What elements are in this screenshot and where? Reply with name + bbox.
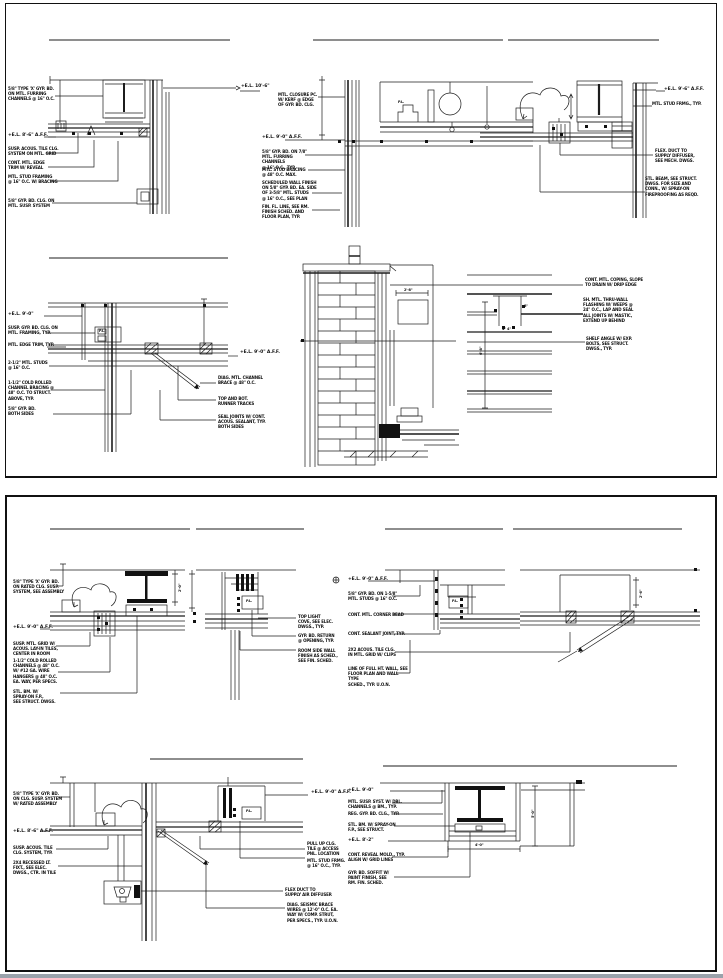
d11-note-5: GYP. BD. SOFFIT W/ PAINT FINISH, SEE RM.… — [348, 870, 396, 886]
d5-dim-1: 2'-8" — [404, 288, 424, 293]
d3-note-2: FLEX. DUCT TO SUPPLY DIFFUSER, SEE MECH.… — [655, 148, 701, 164]
d4-el-right: +E.L. 9'-0" A.F.F. — [240, 350, 280, 356]
d5-dim-3: 6'-8" — [479, 339, 484, 355]
d4-el: +E.L. 9'-0" — [8, 312, 44, 318]
d11-el-2: +E.L. 8'-2" — [348, 838, 384, 844]
d6-el: +E.L. 9'-0" A.F.F. — [13, 625, 57, 631]
d3-note-1: MTL. STUD FRMG., TYP. — [652, 101, 708, 106]
d10-note-2: SUSP. ACOUS. TILE CLG. SYSTEM, TYP. — [13, 845, 59, 855]
d6-note-3: 1-1/2" COLD ROLLED CHANNELS @ 48" O.C. W… — [13, 658, 65, 684]
cad-detail-sheet: 5/8" TYPE 'X' GYP. BD. ON MTL. FURRING C… — [0, 0, 723, 978]
d1-el-right: +E.L. 10'-6" — [241, 84, 281, 90]
d5-dim-2: 8" — [524, 304, 536, 309]
d11-dim-1: 4'-0" — [475, 843, 493, 848]
d11-el-1: +E.L. 9'-0" — [348, 788, 384, 794]
d7-pl-label: P.L. — [246, 599, 258, 604]
d2-note-2: MTL. STUD BRACING @ 48" O.C. MAX. — [262, 167, 312, 177]
d2-note-4: FIN. FL. LINE, SEE RM. FINISH SCHED. AND… — [262, 204, 314, 220]
d11-note-1: MTL. SUSP. SYST. W/ DBL. CHANNELS @ BM.,… — [348, 799, 406, 809]
d10-note-r2: MTL. STUD FRMG. @ 16" O.C., TYP. — [307, 858, 347, 868]
d11-note-3: STL. BM. W/ SPRAY-ON F.P., SEE STRUCT. — [348, 822, 402, 832]
d8-note-4: 2X2 ACOUS. TILE CLG. IN MTL. GRID W/ CLI… — [348, 647, 402, 657]
d2-el: +E.L. 9'-0" A.F.F. — [262, 135, 306, 141]
d10-note-1: 5/8" TYPE 'X' GYP. BD. ON CLG. SUSP. SYS… — [13, 791, 65, 807]
d8-note-3: CONT. SEALANT JOINT, TYP. — [348, 631, 406, 636]
d7-note-3: ROOM SIDE WALL FINISH AS SCHED., SEE FIN… — [298, 648, 342, 664]
d8-el: +E.L. 9'-0" A.F.F. — [348, 577, 392, 583]
d5-note-3: SHELF ANGLE W/ EXP. BOLTS, SEE STRUCT. D… — [586, 336, 638, 352]
d10-note-3: 2X4 RECESSED LT. FIXT., SEE ELEC. DWGS.,… — [13, 860, 59, 876]
d2-pl-label: P.L. — [398, 100, 410, 105]
d5-note-1: CONT. MTL. COPING, SLOPE TO DRAIN W/ DRI… — [585, 277, 643, 287]
d8-note-1: 5/8" GYP. BD. ON 1-5/8" MTL. STUDS @ 16"… — [348, 591, 404, 601]
d5-note-2: SH. MTL. THRU-WALL FLASHING W/ WEEPS @ 2… — [583, 297, 641, 323]
d10-note-r3: FLEX DUCT TO SUPPLY AIR DIFFUSER — [285, 887, 335, 897]
annotation-layer: 5/8" TYPE 'X' GYP. BD. ON MTL. FURRING C… — [0, 0, 723, 978]
d1-note-1: 5/8" TYPE 'X' GYP. BD. ON MTL. FURRING C… — [8, 86, 60, 102]
d7-note-1: TOP LIGHT COVE, SEE ELEC. DWGS., TYP. — [298, 614, 338, 630]
d1-note-2: SUSP. ACOUS. TILE CLG. SYSTEM ON MTL. GR… — [8, 146, 60, 156]
d11-note-2: REG. GYP. BD. CLG., TYP. — [348, 811, 406, 816]
d10-note-r4: DIAG. SEISMIC BRACE WIRES @ 12'-0" O.C. … — [287, 902, 341, 923]
d1-note-5: 5/8" GYP. BD. CLG. ON MTL. SUSP. SYSTEM — [8, 198, 60, 208]
d1-note-4: MTL. STUD FRAMING @ 16" O.C. W/ BRACING — [8, 174, 60, 184]
d4-note-2: MTL. EDGE TRIM, TYP. — [8, 342, 60, 347]
d4-note-r2: TOP AND BOT. RUNNER TRACKS — [218, 396, 262, 406]
d4-note-r1: DIAG. MTL. CHANNEL BRACE @ 48" O.C. — [218, 375, 268, 385]
d3-el: +E.L. 9'-6" A.F.F. — [664, 87, 706, 93]
d4-note-r3: SEAL JOINTS W/ CONT. ACOUS. SEALANT, TYP… — [218, 414, 270, 430]
d6-note-2: SUSP. MTL. GRID W/ ACOUS. LAY-IN TILES, … — [13, 641, 63, 657]
d8-note-2: CONT. MTL. CORNER BEAD — [348, 612, 404, 617]
d8-pl-label: P.L. — [452, 599, 464, 604]
d9-dim: 2'-6" — [639, 584, 644, 598]
d10-pl-label: P.L. — [246, 809, 258, 814]
d6-note-1: 5/8" TYPE 'X' GYP. BD. ON RATED CLG. SUS… — [13, 579, 65, 595]
d1-note-3: CONT. MTL. EDGE TRIM W/ REVEAL — [8, 160, 56, 170]
d4-note-3: 2-1/2" MTL. STUDS @ 16" O.C. — [8, 360, 56, 370]
d3-note-3: STL. BEAM, SEE STRUCT. DWGS. FOR SIZE AN… — [645, 176, 703, 197]
d5-dim-4: 4" 4" — [502, 327, 520, 332]
d1-el: +E.L. 8'-6" A.F.F. — [8, 133, 52, 139]
d10-el: +E.L. 8'-6" A.F.F. — [13, 829, 57, 835]
d4-note-4: 1-1/2" COLD ROLLED CHANNEL BRACING @ 48"… — [8, 380, 60, 401]
d6-note-4: STL. BM. W/ SPRAY-ON F.P., SEE STRUCT. D… — [13, 689, 59, 705]
d4-note-1: SUSP. GYP. BD. CLG. ON MTL. FRAMING, TYP… — [8, 325, 62, 335]
d6-dim: 2'-0" — [178, 578, 183, 592]
d10-note-r1: PULL UP CLG. TILE @ ACCESS PNL. LOCATION — [307, 841, 345, 857]
d7-note-2: GYP. BD. RETURN @ OPENING, TYP. — [298, 633, 340, 643]
d8-note-5: LINE OF FULL HT. WALL, SEE FLOOR PLAN AN… — [348, 666, 408, 687]
d11-dim-2: 5'-0" — [531, 802, 536, 818]
d2-note-3: SCHEDULED WALL FINISH ON 5/8" GYP. BD. E… — [262, 180, 318, 201]
d4-pl-label: P.L. — [99, 329, 111, 334]
d4-note-5: 5/8" GYP. BD. BOTH SIDES — [8, 406, 52, 416]
d2-note-top: MTL. CLOSURE PC. W/ KERF @ EDGE OF GYP. … — [278, 92, 322, 108]
d11-note-4: CONT. REVEAL MOLD., TYP. ALIGN W/ GRID L… — [348, 852, 408, 862]
